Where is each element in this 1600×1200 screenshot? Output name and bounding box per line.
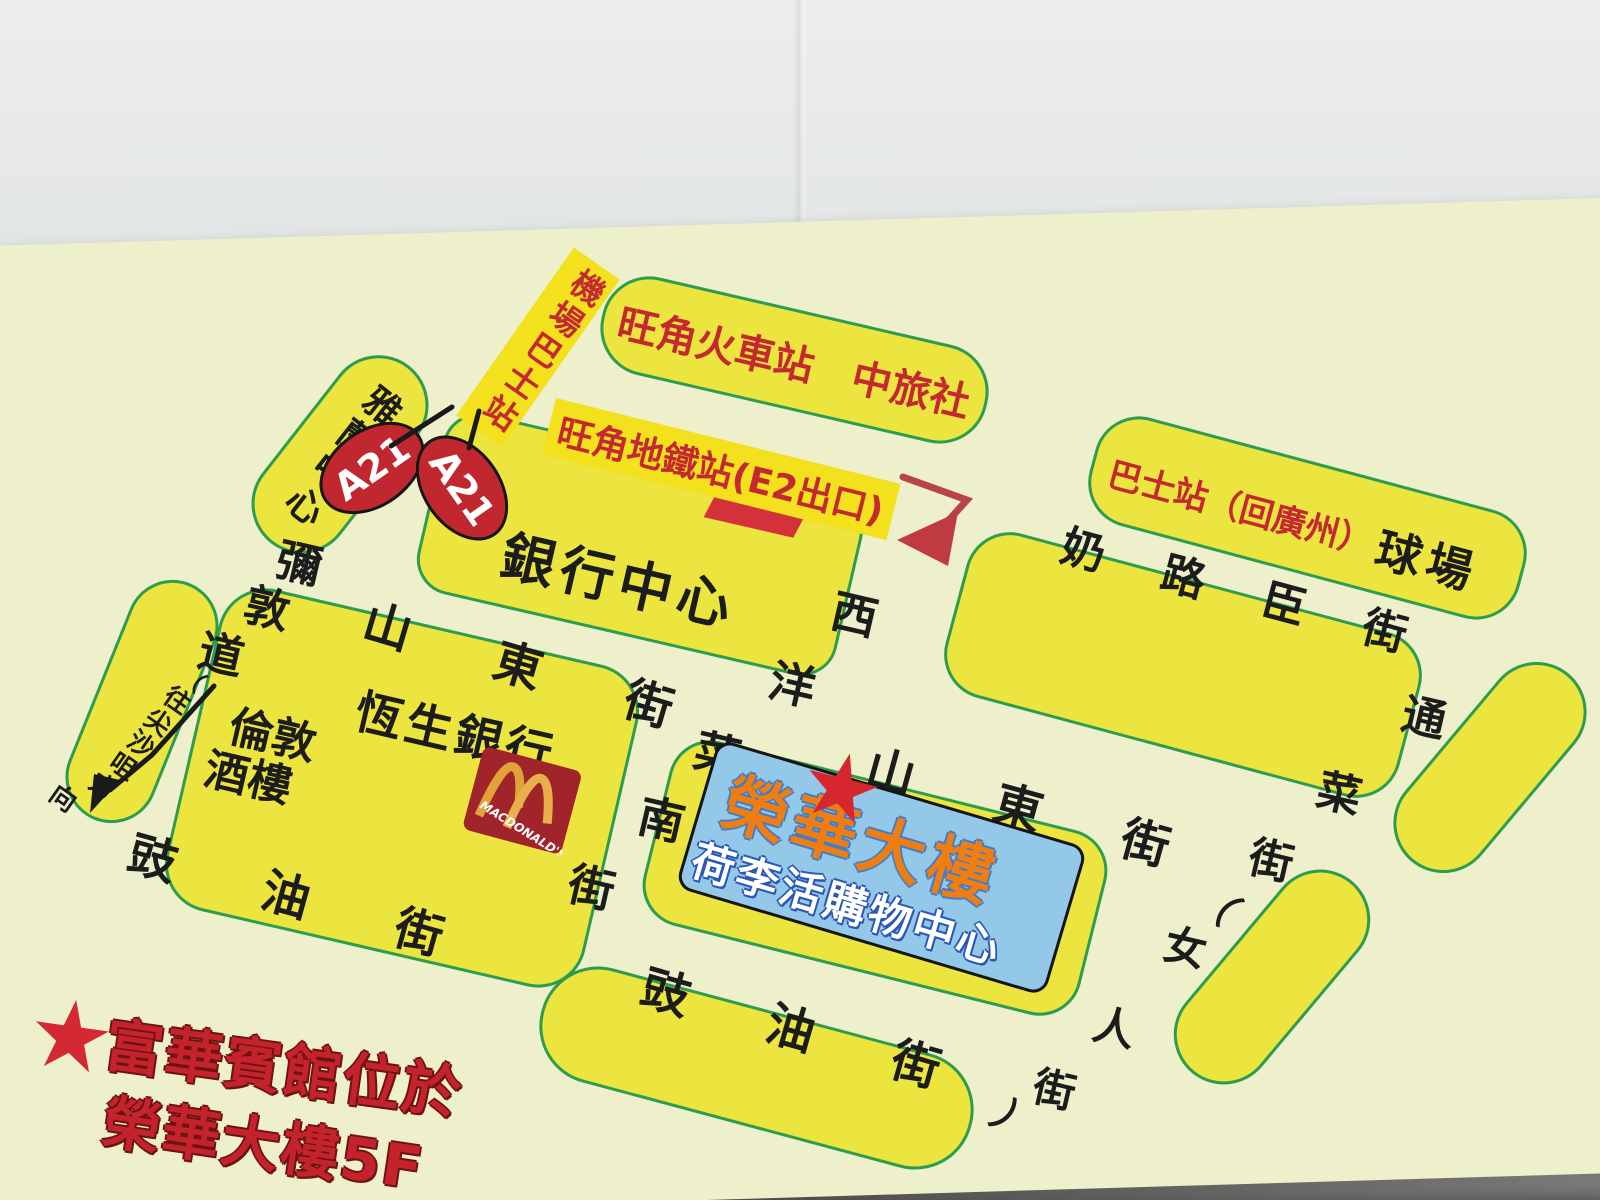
mcdonalds-logo: MACDONALD'S bbox=[461, 744, 584, 856]
photo-of-map-card: 雅蘭中心 旺角火車站 中旅社 銀行中心 恆生銀行 倫敦 酒樓 MACDONALD… bbox=[0, 0, 1600, 1200]
paper-crease bbox=[792, 0, 808, 235]
sports-ground-label: 球場 bbox=[1369, 513, 1487, 604]
